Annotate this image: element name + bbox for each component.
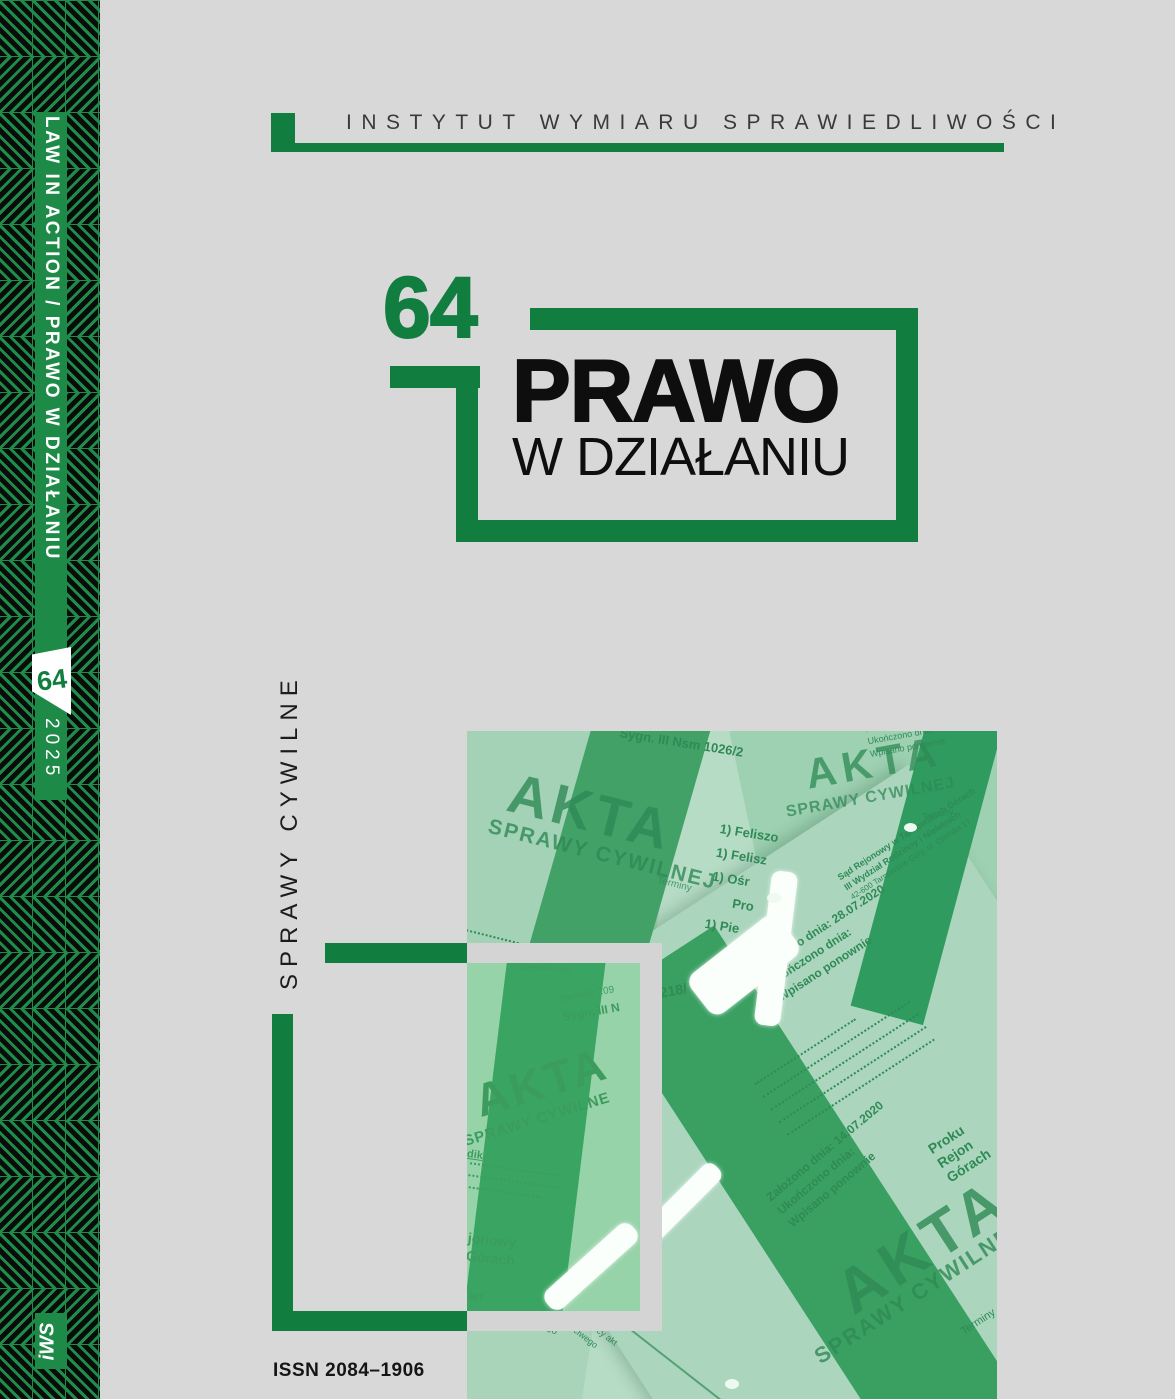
photo-frame-right [640,943,662,1331]
punch-hole [767,893,781,903]
photo-frame-bottom [467,1311,662,1331]
journal-title-line2: W DZIAŁANIU [512,430,849,484]
spine-year: 2025 [35,718,67,800]
publisher-logo: iWS [35,1313,67,1369]
spine-series-title: LAW IN ACTION / PRAWO W DZIAŁANIU [35,116,67,661]
photo-green-bar-top [325,943,467,963]
publisher-logo-text: iWS [36,1323,59,1361]
publisher-name: INSTYTUT WYMIARU SPRAWIEDLIWOŚCI [346,111,1065,135]
journal-title-line1: PRAWO [512,347,839,435]
spine: LAW IN ACTION / PRAWO W DZIAŁANIU 64 202… [0,0,100,1399]
district-court-text: jonowy Górach [467,1229,518,1270]
folder-note: an [468,1288,483,1303]
punch-hole [904,823,917,832]
title-frame-stub [390,366,480,388]
spine-issue-number: 64 [35,663,69,697]
folder-note: dik [467,1148,484,1162]
issn-number: ISSN 2084–1906 [273,1360,425,1382]
header-accent-square [271,113,295,144]
photo-green-bar-bottom [272,1311,467,1331]
photo-frame-top [467,943,662,963]
photo-green-bar-left [272,1014,293,1331]
title-frame-right [896,308,918,542]
photo-highlight-window: (powstała i data) Symbol: 209 Sygn. III … [467,963,640,1311]
punch-hole [725,1379,739,1389]
section-label: SPRAWY CYWILNE [276,673,304,990]
cover-issue-number: 64 [383,268,477,350]
journal-cover: LAW IN ACTION / PRAWO W DZIAŁANIU 64 202… [0,0,1175,1399]
title-frame-top [530,308,918,330]
header-rule [271,143,1004,152]
title-frame-bottom [456,520,918,542]
title-frame-left [456,366,478,542]
